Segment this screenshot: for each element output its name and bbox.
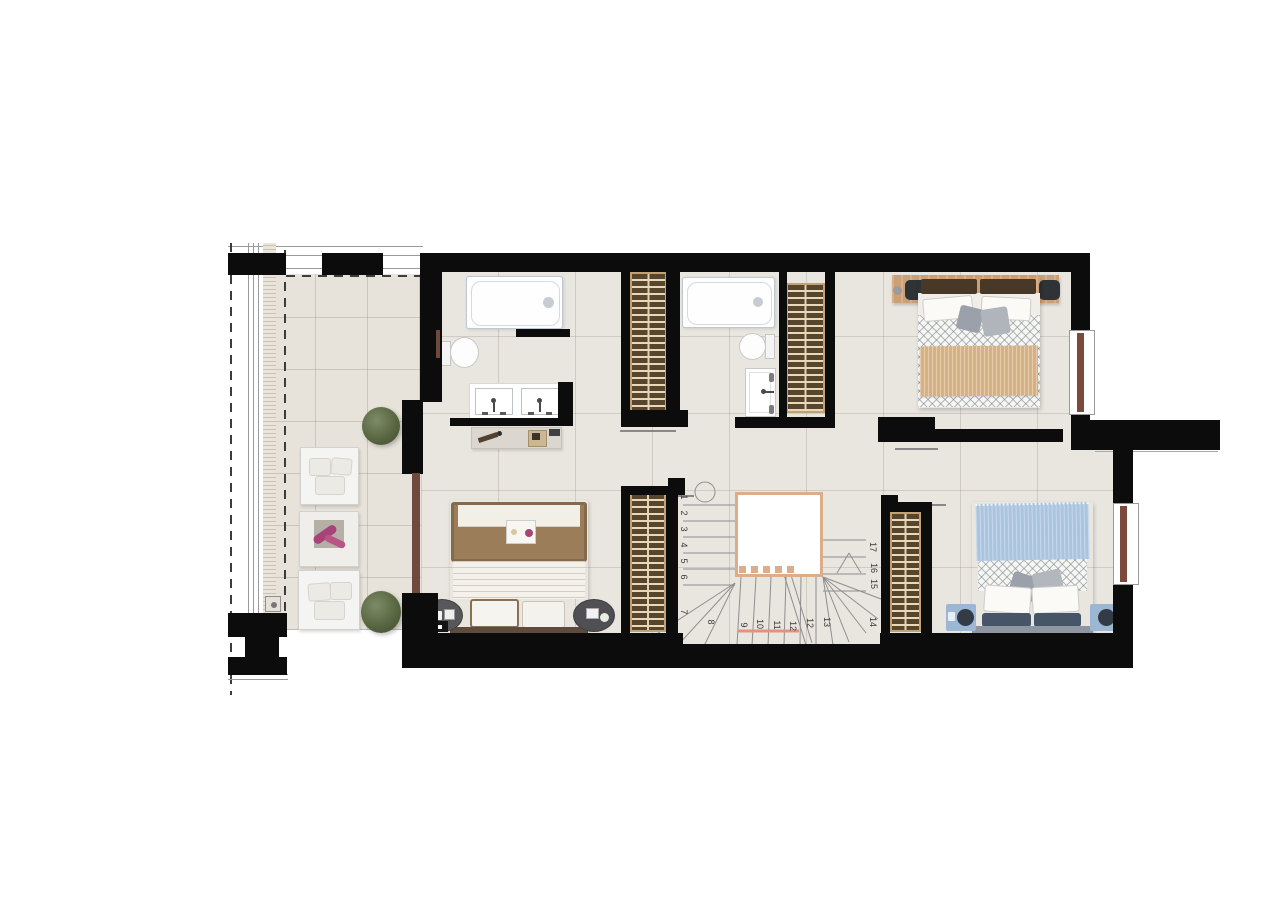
- toilet-bowl: [450, 337, 479, 368]
- wall-wardrobeA-left: [621, 272, 630, 427]
- armchair-pillow: [307, 582, 331, 602]
- wall-bedroom3-right-bottom: [1113, 585, 1133, 635]
- nightstand-decor: [948, 612, 955, 621]
- faucet-dot: [761, 389, 766, 394]
- shower-drain: [753, 297, 763, 307]
- bed1-pillow: [522, 601, 565, 628]
- faucet: [493, 402, 495, 412]
- wall-wardrobeA-bottom: [630, 410, 688, 427]
- terrace-armchair-2: [298, 570, 360, 630]
- bedroom3-bed: [972, 502, 1093, 633]
- master-nightstand-right: [573, 599, 615, 632]
- bedroom2-nightstand-right: [1039, 280, 1060, 300]
- stair-step-number: 2: [679, 510, 689, 515]
- nightstand-decor: [586, 608, 599, 619]
- bath1-duct-panel: [436, 330, 440, 358]
- wall-bedroom2-door-post: [878, 417, 935, 442]
- stair-step-number: 11: [772, 620, 782, 629]
- stair-step-number: 6: [679, 574, 689, 579]
- bed3-pillow: [983, 584, 1032, 614]
- stair-step-number: 16: [869, 563, 879, 573]
- wall-vanity: [450, 418, 568, 426]
- bathtub-1: [466, 276, 563, 329]
- chimney-top: [228, 613, 287, 637]
- wardrobe-bath1: [630, 272, 667, 412]
- item-dot: [438, 625, 442, 629]
- faucet-handle: [528, 412, 534, 415]
- stair-step-number: 10: [755, 619, 765, 629]
- terrace-sliding-door: [412, 473, 420, 593]
- chimney-mid: [245, 637, 279, 657]
- bed2-throw-pillow: [980, 306, 1011, 337]
- double-vanity: [469, 383, 563, 419]
- stair-baluster: [739, 566, 746, 573]
- bath-accessory: [769, 405, 774, 414]
- console-decor-tray: [549, 429, 560, 436]
- bedroom3-window-frame: [1120, 506, 1127, 582]
- bed3-headboard: [972, 626, 1093, 633]
- stair-step-number: 8: [706, 619, 716, 624]
- wall-party-extension: [1071, 420, 1220, 450]
- stair-step-number: 12: [805, 618, 815, 628]
- bed3-navy-cushion: [982, 613, 1031, 627]
- faucet-handle: [500, 412, 506, 415]
- stair-step-number: 17: [868, 542, 878, 552]
- wall-wardrobeD-right: [921, 505, 932, 633]
- lamp: [957, 609, 974, 626]
- wall-bottom-mid: [683, 644, 880, 668]
- console-decor-item: [532, 433, 540, 440]
- armchair-seat-cushion: [315, 476, 345, 495]
- bed3-pillow: [1031, 585, 1079, 614]
- wall-pillar-left: [228, 253, 286, 275]
- wall-bedroom3-right-top: [1113, 450, 1133, 503]
- console-decor-dot: [497, 431, 502, 436]
- bed1-striped-duvet: [453, 561, 585, 599]
- wall-terrace-jog: [402, 400, 423, 474]
- wall-vanity-post: [558, 382, 573, 426]
- cup: [511, 529, 517, 535]
- terrace-plant-bottom: [361, 591, 401, 633]
- bedroom2-decor: [893, 286, 902, 295]
- toilet-2: [739, 333, 776, 360]
- wardrobe-bedroom3: [890, 512, 921, 632]
- flowers: [525, 529, 533, 537]
- wall-bottom-left: [402, 633, 683, 668]
- stair-step-number: 13: [822, 617, 832, 627]
- console-decor-brush: [478, 432, 499, 443]
- bath-accessory: [769, 373, 774, 382]
- wall-pillar-mid: [322, 253, 383, 275]
- washbasin-2: [745, 368, 776, 417]
- terrace-coffee-table: [299, 511, 359, 567]
- floor-plan: 123456789101112121314151617: [0, 0, 1280, 905]
- wall-wardrobeB-left: [779, 272, 787, 428]
- chimney-bottom: [228, 657, 287, 675]
- stair-step-number: 5: [679, 558, 689, 563]
- terrace-plant-top: [362, 407, 400, 445]
- stair-step-number: 1: [679, 494, 689, 499]
- toilet-tank: [765, 334, 775, 359]
- bed2-headboard-cushion: [980, 279, 1036, 294]
- stair-baluster: [763, 566, 770, 573]
- bedroom2-bed: [918, 277, 1040, 408]
- terrace-drain: [265, 596, 281, 612]
- wall-hallway: [935, 429, 1063, 442]
- stair-step-number: 15: [869, 579, 879, 589]
- bedroom3-nightstand-left: [946, 604, 976, 631]
- wall-wardrobeC-right: [666, 493, 678, 633]
- wall-wardrobeD-left: [881, 512, 890, 633]
- bed1-breakfast-tray: [506, 520, 536, 544]
- stair-step-number: 14: [868, 617, 878, 627]
- bed2-headboard-cushion: [921, 279, 977, 294]
- stairwell-void: [735, 492, 823, 577]
- armchair-seat-cushion: [314, 601, 345, 620]
- stair-step-number: 12: [788, 621, 798, 631]
- bedroom2-window-frame: [1077, 333, 1084, 412]
- faucet-dot: [491, 398, 496, 403]
- faucet: [539, 402, 541, 412]
- master-bed: [450, 500, 588, 633]
- stair-step-number: 4: [679, 542, 689, 547]
- drain-dot: [271, 602, 277, 608]
- stair-baluster: [787, 566, 794, 573]
- stair-step-number: 7: [679, 609, 689, 614]
- bed2-tan-blanket: [920, 345, 1038, 396]
- faucet-dot: [537, 398, 542, 403]
- stair-step-number: 9: [739, 622, 749, 627]
- faucet-handle: [546, 412, 552, 415]
- wall-wardrobeB-right: [825, 272, 835, 428]
- armchair-pillow: [309, 458, 331, 476]
- toilet-1: [441, 337, 479, 368]
- stair-step-number: 3: [679, 526, 689, 531]
- terrace-armchair-1: [300, 447, 359, 505]
- shower-tray: [682, 277, 775, 328]
- wardrobe-hall-left: [630, 492, 666, 632]
- armchair-pillow: [330, 582, 352, 600]
- wall-top-main: [422, 253, 1090, 272]
- flowers: [600, 613, 609, 622]
- wall-bedroom2-right-top: [1071, 253, 1090, 332]
- bathtub-drain: [543, 297, 554, 308]
- wall-bottom-right: [880, 633, 1133, 668]
- bed1-pillow: [470, 599, 519, 628]
- stair-baluster: [751, 566, 758, 573]
- bed3-navy-cushion: [1034, 613, 1081, 627]
- dressing-console: [471, 427, 562, 449]
- wardrobe-bedroom2: [786, 283, 825, 413]
- staircase-linework: [0, 0, 1280, 905]
- toilet-bowl: [739, 333, 766, 360]
- faucet-handle: [482, 412, 488, 415]
- bed3-blue-blanket: [976, 502, 1090, 561]
- wall-tub-half: [516, 329, 570, 337]
- wall-bath1-left: [420, 253, 442, 402]
- stair-baluster: [775, 566, 782, 573]
- wall-wardrobeC-left: [621, 486, 630, 633]
- nightstand-decor: [444, 609, 455, 620]
- wall-wardrobeA-right: [666, 272, 680, 427]
- faucet: [765, 391, 774, 393]
- armchair-pillow: [330, 457, 352, 476]
